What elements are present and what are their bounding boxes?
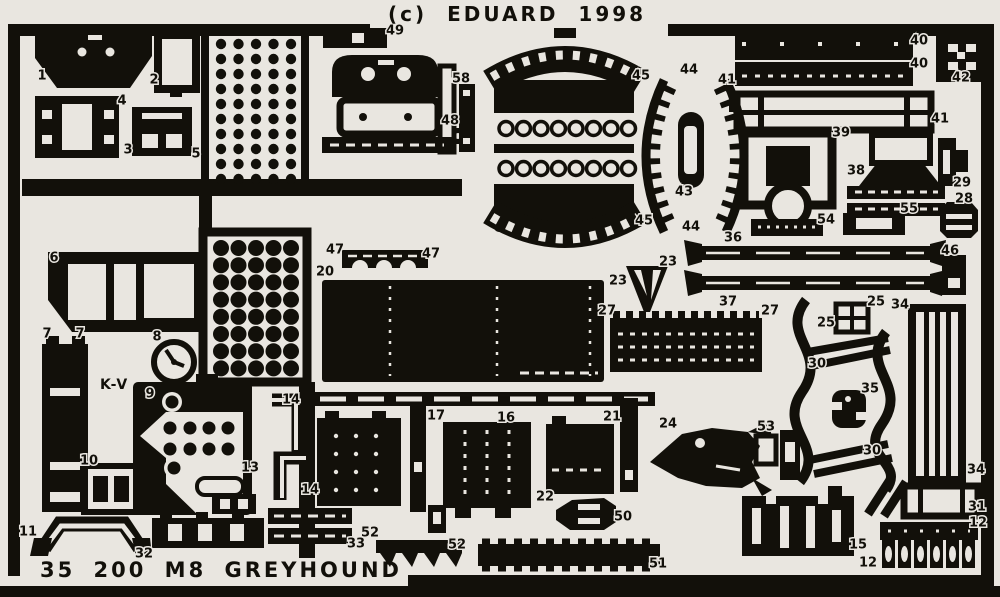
part-number-label: 23: [659, 255, 677, 270]
part-number-label: 39: [832, 126, 850, 141]
part-shape: [352, 260, 368, 276]
part-shape: [164, 422, 177, 435]
part-shape: [766, 496, 776, 504]
part-number-label: 36: [724, 231, 742, 246]
part-number-label: 21: [603, 410, 621, 425]
part-number-label: 29: [953, 176, 971, 191]
part-shape: [966, 44, 976, 52]
part-shape: [433, 512, 441, 524]
part-shape: [478, 544, 660, 566]
part-number-label: 34: [967, 463, 985, 478]
part-number-label: 47: [422, 247, 440, 262]
part-shape: [933, 546, 940, 562]
part-shape: [42, 135, 52, 144]
part-number-label: 52: [448, 538, 466, 553]
part-shape: [158, 35, 196, 89]
part-number-label: 9: [145, 387, 154, 402]
part-shape: [400, 260, 416, 276]
part-shape: [785, 442, 795, 462]
part-shape: [766, 146, 810, 186]
part-number-label: 13: [241, 461, 259, 476]
part-shape: [901, 546, 908, 562]
part-number-label: 23: [609, 274, 627, 289]
part-number-label: 5: [191, 147, 200, 162]
part-shape: [216, 39, 296, 184]
photoetch-sheet: 1234549485845454444434040424141393829285…: [0, 0, 1000, 597]
part-shape: [144, 264, 194, 318]
part-shape: [171, 359, 177, 365]
part-shape: [463, 138, 470, 144]
part-number-label: 16: [497, 411, 515, 426]
part-shape: [684, 270, 702, 296]
part-shape: [325, 411, 339, 419]
part-shape: [948, 44, 958, 52]
part-shape: [443, 422, 531, 508]
part-shape: [756, 436, 776, 464]
part-shape: [872, 135, 930, 163]
part-shape: [372, 411, 386, 419]
part-number-label: 48: [441, 114, 459, 129]
part-shape: [836, 316, 868, 320]
part-shape: [199, 182, 212, 234]
part-number-label: 40: [910, 57, 928, 72]
part-shape: [402, 553, 418, 567]
part-shape: [184, 443, 197, 456]
part-shape: [455, 508, 471, 518]
part-shape: [943, 150, 950, 174]
part-shape: [578, 518, 600, 524]
part-shape: [904, 486, 978, 516]
part-shape: [752, 478, 772, 496]
part-shape: [397, 67, 411, 81]
part-number-label: 54: [817, 213, 835, 228]
part-shape: [946, 308, 951, 480]
part-shape: [960, 486, 965, 516]
part-shape: [935, 308, 940, 480]
part-number-label: 1: [37, 69, 46, 84]
part-number-label: 20: [316, 265, 334, 280]
part-shape: [50, 462, 80, 470]
part-shape: [948, 278, 960, 288]
part-number-label: 6: [49, 251, 58, 266]
part-shape: [50, 388, 80, 396]
part-shape: [495, 508, 511, 518]
part-shape: [668, 24, 994, 36]
part-shape: [735, 36, 913, 60]
part-number-label: 27: [761, 304, 779, 319]
part-number-label: 28: [955, 192, 973, 207]
part-number-label: 44: [680, 63, 698, 78]
part-shape: [238, 499, 248, 509]
part-shape: [806, 506, 815, 548]
part-number-label: 25: [817, 316, 835, 331]
part-number-label: 17: [427, 409, 445, 424]
part-shape: [880, 522, 978, 540]
part-shape: [424, 553, 440, 567]
vehicle-marking-text: K-V: [100, 377, 128, 393]
part-shape: [832, 510, 841, 542]
part-shape: [554, 28, 576, 38]
part-number-label: 24: [659, 417, 677, 432]
part-shape: [104, 110, 114, 119]
part-shape: [142, 134, 158, 148]
part-shape: [684, 240, 702, 266]
part-shape: [106, 48, 115, 57]
part-number-label: 4: [117, 94, 126, 109]
part-shape: [62, 104, 92, 150]
part-shape: [30, 538, 52, 556]
part-shape: [203, 422, 216, 435]
part-shape: [361, 67, 375, 81]
part-number-label: 10: [80, 454, 98, 469]
part-shape: [965, 546, 972, 562]
part-number-label: 7: [75, 327, 84, 342]
part-shape: [414, 462, 422, 472]
part-number-label: 43: [675, 185, 693, 200]
part-shape: [924, 308, 929, 480]
part-shape: [780, 506, 789, 548]
part-shape: [35, 35, 152, 88]
part-number-label: 14: [301, 483, 319, 498]
part-shape: [695, 438, 705, 448]
part-shape: [948, 62, 958, 70]
part-shape: [828, 486, 842, 496]
fret-drawing: 1234549485845454444434040424141393829285…: [0, 0, 1000, 597]
part-shape: [650, 428, 760, 488]
part-shape: [160, 512, 172, 519]
part-number-label: 47: [326, 243, 344, 258]
part-shape: [729, 100, 737, 112]
copyright-text: (c) EDUARD 1998: [388, 2, 646, 26]
part-number-label: 45: [635, 214, 653, 229]
part-shape: [104, 135, 114, 144]
part-number-label: 58: [452, 72, 470, 87]
part-shape: [758, 94, 764, 130]
part-shape: [352, 33, 364, 43]
part-shape: [168, 524, 182, 541]
part-shape: [859, 163, 941, 186]
part-shape: [845, 396, 851, 402]
part-shape: [404, 113, 412, 121]
part-shape: [966, 62, 976, 70]
part-shape: [114, 264, 136, 320]
part-shape: [196, 512, 208, 519]
part-shape: [957, 52, 965, 59]
part-number-label: 12: [969, 516, 987, 531]
part-number-label: 37: [719, 295, 737, 310]
part-shape: [904, 94, 910, 130]
part-number-label: 55: [900, 202, 918, 217]
part-shape: [42, 110, 52, 119]
part-number-label: 30: [863, 444, 881, 459]
part-number-label: 25: [867, 295, 885, 310]
part-shape: [164, 443, 177, 456]
part-shape: [114, 476, 129, 502]
part-shape: [942, 255, 966, 295]
part-shape: [168, 462, 181, 475]
part-number-label: 15: [849, 538, 867, 553]
part-number-label: 12: [859, 556, 877, 571]
part-shape: [752, 508, 761, 544]
part-shape: [578, 504, 600, 510]
part-number-label: 11: [19, 525, 37, 540]
part-shape: [340, 100, 438, 134]
part-number-label: 14: [282, 393, 300, 408]
part-shape: [376, 260, 392, 276]
part-shape: [142, 113, 182, 119]
part-shape: [232, 512, 244, 519]
part-number-label: 38: [847, 164, 865, 179]
part-shape: [946, 214, 972, 219]
part-shape: [230, 524, 244, 541]
part-number-label: 30: [808, 357, 826, 372]
part-shape: [684, 126, 697, 174]
part-shape: [8, 24, 20, 576]
part-shape: [170, 89, 182, 97]
part-number-label: 35: [861, 382, 879, 397]
part-shape: [203, 443, 216, 456]
part-number-label: 41: [718, 73, 736, 88]
part-number-label: 3: [123, 143, 132, 158]
part-shape: [946, 225, 972, 230]
part-shape: [610, 318, 762, 372]
part-shape: [552, 416, 566, 424]
part-shape: [917, 546, 924, 562]
part-shape: [184, 422, 197, 435]
part-shape: [317, 418, 401, 506]
part-number-label: 8: [152, 330, 161, 345]
part-number-label: 51: [649, 557, 667, 572]
part-shape: [737, 110, 931, 115]
part-shape: [213, 240, 299, 376]
part-shape: [78, 48, 87, 57]
part-shape: [818, 496, 828, 504]
part-shape: [170, 27, 182, 35]
part-shape: [378, 60, 394, 65]
part-number-label: 31: [968, 500, 986, 515]
part-shape: [68, 264, 106, 320]
part-shape: [626, 266, 668, 312]
part-shape: [0, 586, 1000, 597]
part-shape: [322, 280, 604, 382]
part-shape: [446, 553, 462, 567]
part-number-label: 34: [891, 298, 909, 313]
part-shape: [50, 492, 80, 502]
part-shape: [410, 406, 426, 512]
part-shape: [197, 478, 243, 495]
part-number-label: 44: [682, 220, 700, 235]
part-number-label: 46: [941, 244, 959, 259]
part-shape: [359, 113, 367, 121]
part-shape: [222, 443, 235, 456]
part-shape: [88, 35, 102, 40]
part-shape: [220, 499, 230, 509]
part-shape: [546, 424, 614, 494]
part-shape: [949, 546, 956, 562]
part-shape: [856, 412, 866, 420]
part-shape: [981, 28, 994, 576]
part-shape: [856, 218, 892, 229]
part-shape: [885, 546, 892, 562]
part-number-label: 41: [931, 112, 949, 127]
part-shape: [463, 90, 470, 96]
part-number-label: 52: [361, 526, 379, 541]
part-number-label: 53: [757, 420, 775, 435]
part-shape: [918, 486, 923, 516]
part-number-label: 40: [910, 34, 928, 49]
part-number-label: 50: [614, 510, 632, 525]
part-shape: [408, 575, 994, 587]
part-number-label: 27: [598, 304, 616, 319]
part-shape: [198, 524, 212, 541]
part-shape: [222, 422, 235, 435]
part-number-label: 7: [42, 327, 51, 342]
part-number-label: 2: [149, 73, 158, 88]
part-shape: [832, 402, 842, 410]
part-shape: [93, 476, 108, 502]
part-number-label: 22: [536, 490, 554, 505]
part-shape: [166, 134, 182, 148]
part-number-label: 45: [632, 69, 650, 84]
part-shape: [166, 396, 179, 409]
part-shape: [625, 470, 633, 480]
part-number-label: 42: [952, 71, 970, 86]
part-shape: [956, 150, 968, 172]
sheet-title: 35 200 M8 GREYHOUND: [40, 558, 402, 582]
part-shape: [940, 202, 978, 238]
part-shape: [735, 62, 913, 86]
part-shape: [556, 498, 616, 530]
